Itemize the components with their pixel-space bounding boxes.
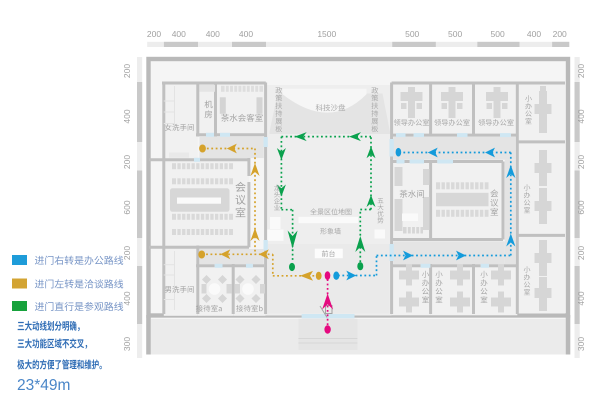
svg-text:500: 500 <box>491 29 505 39</box>
svg-text:300: 300 <box>576 337 586 351</box>
svg-text:500: 500 <box>405 29 419 39</box>
svg-text:400: 400 <box>576 291 586 305</box>
svg-text:1500: 1500 <box>317 29 336 39</box>
svg-text:400: 400 <box>122 291 132 305</box>
svg-text:200: 200 <box>122 246 132 260</box>
svg-text:200: 200 <box>122 64 132 78</box>
svg-text:23*49m: 23*49m <box>17 377 70 394</box>
svg-text:400: 400 <box>122 109 132 123</box>
svg-text:400: 400 <box>206 29 220 39</box>
svg-text:400: 400 <box>527 29 541 39</box>
svg-text:200: 200 <box>553 29 567 39</box>
svg-text:200: 200 <box>122 155 132 169</box>
svg-text:400: 400 <box>172 29 186 39</box>
svg-text:400: 400 <box>239 29 253 39</box>
svg-text:200: 200 <box>576 155 586 169</box>
svg-text:200: 200 <box>147 29 161 39</box>
svg-text:300: 300 <box>122 337 132 351</box>
svg-text:200: 200 <box>576 64 586 78</box>
svg-text:400: 400 <box>576 109 586 123</box>
svg-text:500: 500 <box>448 29 462 39</box>
svg-text:600: 600 <box>576 200 586 214</box>
svg-text:600: 600 <box>122 200 132 214</box>
svg-text:200: 200 <box>576 246 586 260</box>
